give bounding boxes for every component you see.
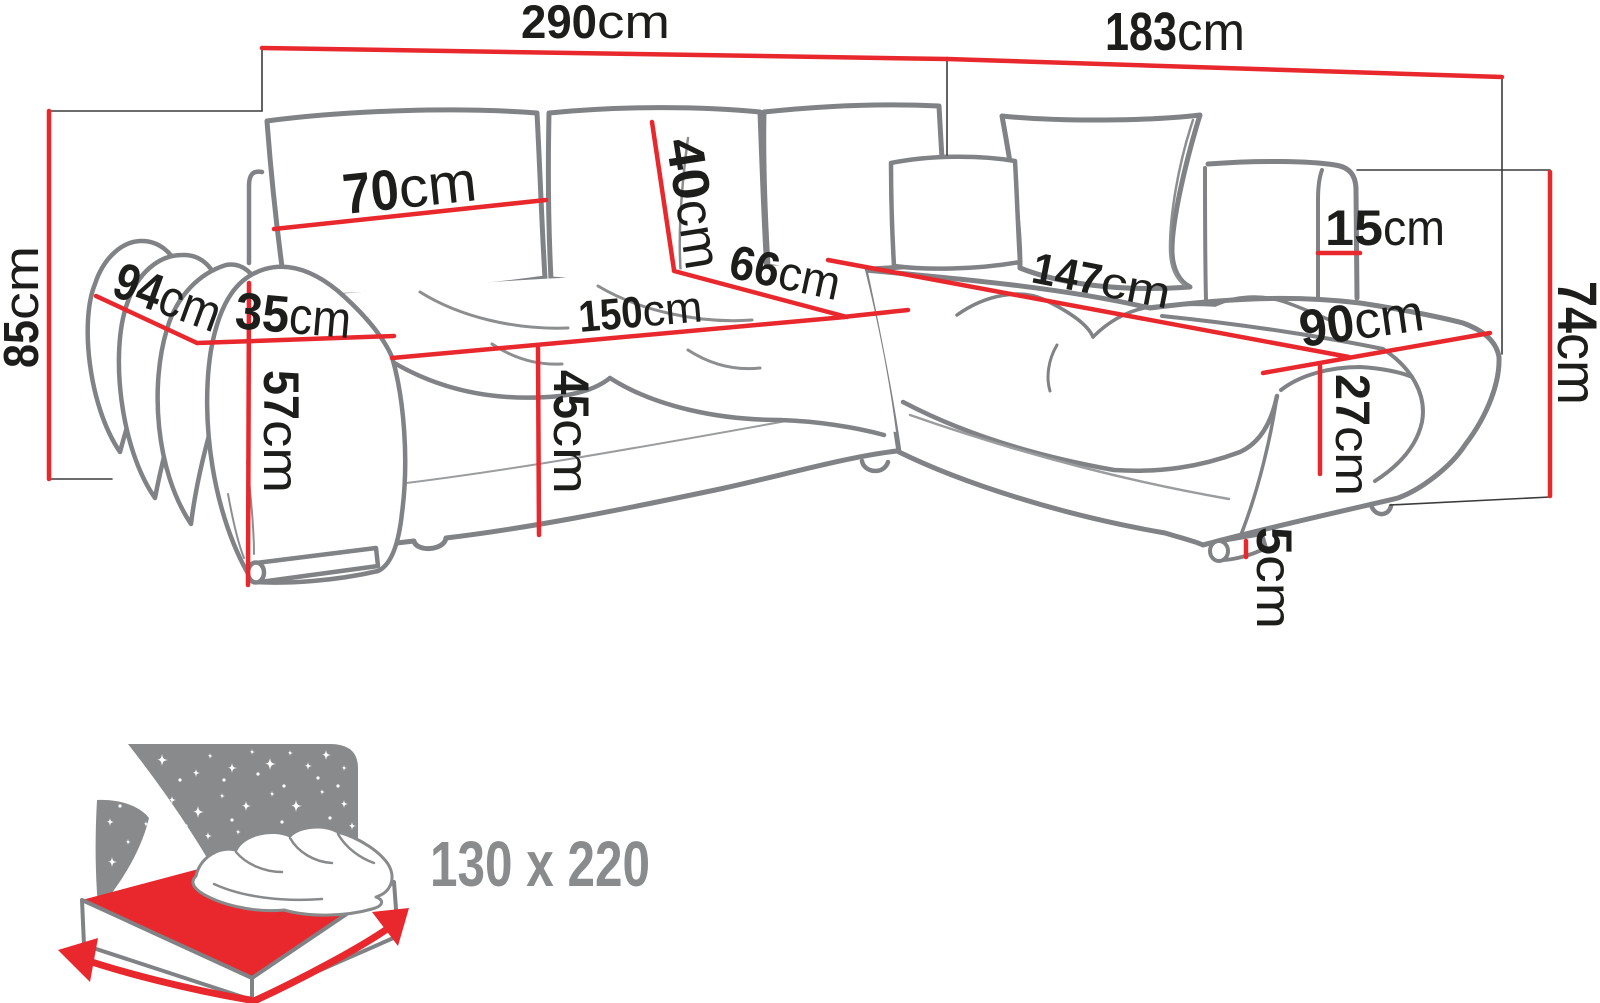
svg-text:290cm: 290cm xyxy=(521,0,670,48)
svg-text:27cm: 27cm xyxy=(1325,374,1378,496)
svg-text:183cm: 183cm xyxy=(1105,2,1245,62)
svg-text:35cm: 35cm xyxy=(233,282,354,350)
svg-text:74cm: 74cm xyxy=(1546,281,1600,405)
svg-text:57cm: 57cm xyxy=(253,370,309,493)
svg-text:5cm: 5cm xyxy=(1246,527,1302,629)
svg-text:130 x 220: 130 x 220 xyxy=(430,828,650,900)
svg-text:85cm: 85cm xyxy=(0,246,49,368)
svg-text:45cm: 45cm xyxy=(543,370,599,494)
svg-text:15cm: 15cm xyxy=(1325,200,1445,256)
